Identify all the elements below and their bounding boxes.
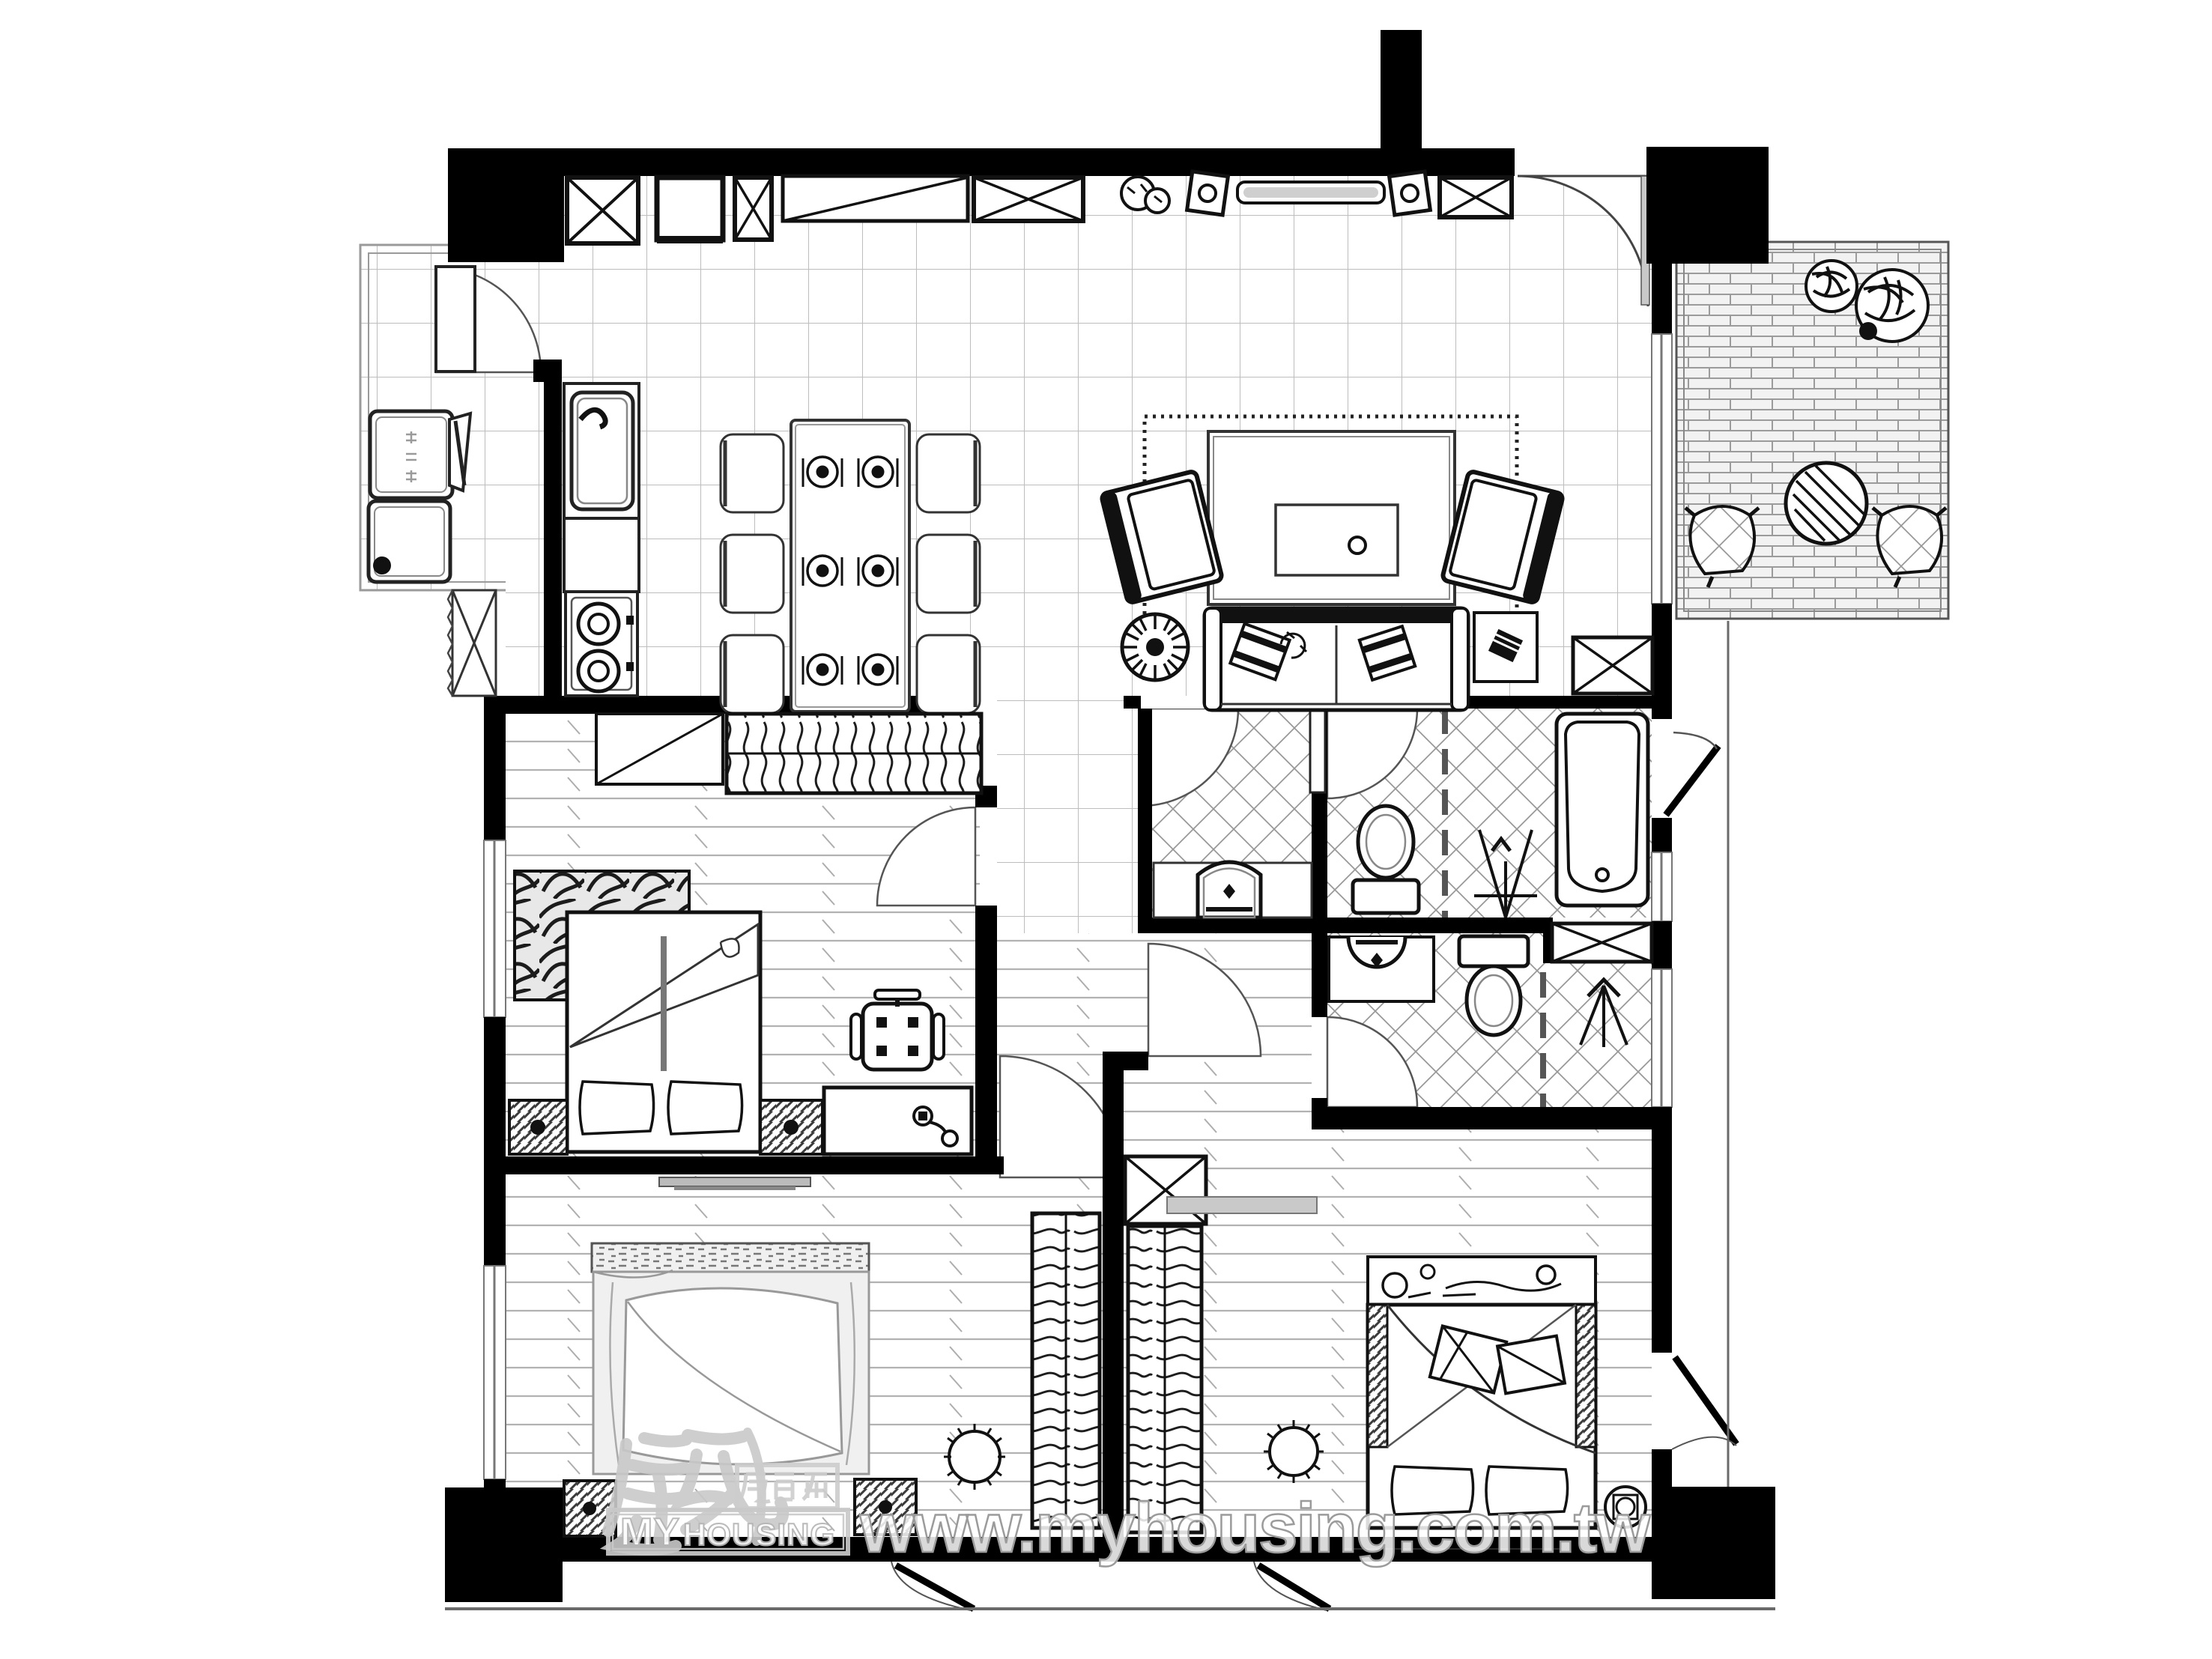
svg-text:HOUSING: HOUSING [683,1517,835,1552]
svg-text:MY: MY [620,1511,680,1554]
svg-text:www.myhousing.com.tw: www.myhousing.com.tw [859,1488,1651,1567]
